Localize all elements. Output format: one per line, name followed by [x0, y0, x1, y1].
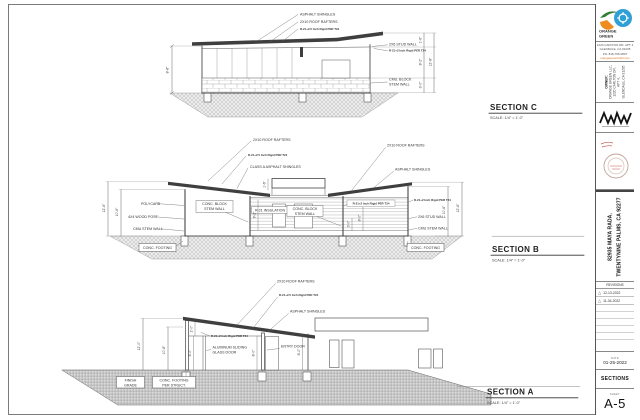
- label-concblock-bc-2: STEM WALL: [295, 212, 316, 216]
- section-b-drawing: 12'-6" 10'-6" 12'-6" 10'-6" 9'-2" 8'-0" …: [102, 138, 584, 263]
- dim-a-left-inner: 10'-8": [162, 345, 166, 354]
- section-c-scale: SCALE: 1/4" = 1'-0": [490, 116, 524, 120]
- section-c-drawing: 8'-8" 1'-6" 8'-2" 3'-0" 12'-8" ASPHALT S…: [166, 13, 583, 121]
- avn-logo-icon: [598, 108, 633, 128]
- revision-date: 11-04-2022: [603, 299, 620, 303]
- sheet-title: SECTIONS: [601, 376, 629, 382]
- dim-c-r1: 1'-6": [419, 36, 423, 44]
- label-rigid2-bc: R-21+2 Inch Rigid PER T24: [353, 202, 390, 206]
- roof-band: [192, 32, 383, 46]
- logo-text-2: GREEN: [599, 34, 613, 39]
- label-grade-a-1: FINISH: [125, 378, 137, 382]
- drawing-sheet: 8'-8" 1'-6" 8'-2" 3'-0" 12'-8" ASPHALT S…: [0, 0, 640, 420]
- sheet-number: A-5: [604, 396, 626, 411]
- revision-row-empty: [596, 326, 634, 333]
- label-shingles-b: ASPHALT SHINGLES: [395, 168, 431, 172]
- label-classa-b: CLASS A ASPHALT SHINGLES: [250, 165, 301, 169]
- dim-b-c4: 1'-6": [263, 180, 267, 188]
- label-concblock-b-2: STEM WALL: [204, 207, 225, 211]
- title-block: ORANGE GREEN 1220 CARLTON DR. APT 4 GLEN…: [595, 4, 634, 415]
- dim-c-left: 8'-8": [166, 66, 170, 74]
- revision-row-empty: [596, 305, 634, 312]
- dim-c-total: 12'-8": [429, 57, 433, 66]
- designer-logo-block: [596, 103, 634, 133]
- sheet-title-block: SECTIONS: [596, 370, 634, 389]
- label-stud-b: 2X6 STUD WALL: [418, 215, 446, 219]
- stamp-seal-icon: [597, 136, 634, 186]
- roof-band: [183, 317, 315, 339]
- label-rafters-b-right: 2X10 ROOF RAFTERS: [387, 144, 425, 148]
- label-rigid25-c: R-21+2.5 Inch Rigid PER T24: [300, 27, 340, 31]
- section-c-title: SECTION C: [490, 103, 537, 112]
- revision-row-empty: [596, 312, 634, 319]
- dim-a-d3: 8'-0": [252, 349, 256, 357]
- label-cmu-b-right: CMU STEM WALL: [418, 227, 448, 231]
- roof-band-right: [328, 182, 412, 197]
- label-polycarb-b: POLYCARB: [141, 202, 161, 206]
- project-address-block: 82935 MAYA RADA, TWENTYNINE PALMS, CA 92…: [596, 190, 634, 282]
- firm-logo: ORANGE GREEN: [596, 4, 634, 42]
- label-rigid2-a: R-21+2 Inch Rigid PER T24: [211, 334, 248, 338]
- date-block: DATE 01-25-2022: [596, 352, 634, 370]
- label-sliding-a-2: GLASS DOOR: [213, 351, 237, 355]
- dim-a-d1: 2'-0": [190, 325, 194, 333]
- dim-b-left-outer: 12'-6": [102, 203, 106, 212]
- label-footing-a-2: PER STRUCT.: [162, 383, 186, 387]
- section-a-drawing: 12'-0" 10'-8" 2'-0" 8'-0" 8'-0" 8'-0" 2X…: [62, 280, 580, 406]
- label-cmu-b-left: CMU STEM WALL: [133, 227, 163, 231]
- label-rigid25-a: R-21+2.5 Inch Rigid PER T24: [279, 293, 319, 297]
- label-shingles-a: ASPHALT SHINGLES: [290, 310, 326, 314]
- sheet-number-block: SHEET A-5: [596, 389, 634, 415]
- label-footing-a-1: CONC. FOOTING: [160, 378, 189, 382]
- date-value: 01-25-2022: [603, 360, 627, 365]
- label-shingles-c: ASPHALT SHINGLES: [300, 13, 336, 17]
- label-entry-a: ENTRY DOOR: [281, 345, 305, 349]
- label-stud-c: 2X6 STUD WALL: [389, 43, 417, 47]
- label-r21-b: R-21 INSULATION: [255, 209, 285, 213]
- revision-row: △ 12-13-2022: [596, 289, 634, 297]
- label-rafters-c: 2X10 ROOF RAFTERS: [300, 20, 338, 24]
- dim-a-d2: 8'-0": [188, 349, 192, 357]
- dim-b-c3: 3'-0": [347, 220, 351, 228]
- project-address-line-1: 82935 MAYA RADA,: [607, 197, 616, 276]
- drawing-canvas: 8'-8" 1'-6" 8'-2" 3'-0" 12'-8" ASPHALT S…: [0, 0, 595, 420]
- dim-a-d4: 8'-0": [297, 348, 301, 356]
- owner-block: OWNER: ORANGE GREEN LLC, 1220 CARLTON DR…: [596, 62, 634, 103]
- revision-row-empty: [596, 333, 634, 340]
- dim-b-right-outer: 12'-6": [456, 203, 460, 212]
- label-concblock-b-1: CONC. BLOCK: [202, 202, 227, 206]
- dim-a-left-outer: 12'-0": [137, 341, 141, 350]
- project-address-line-2: TWENTYNINE PALMS, CA 92277: [615, 197, 624, 276]
- dim-b-c2: 8'-0": [358, 214, 362, 222]
- revisions-heading: REVISIONS: [596, 282, 634, 289]
- label-rigid2-br: R-21+2 Inch Rigid PER T24: [414, 198, 451, 202]
- firm-address-block: 1220 CARLTON DR. APT 4 GLENDALE, CA 9120…: [596, 42, 634, 62]
- revision-row-empty: [596, 319, 634, 326]
- label-sliding-a-1: ALUMINUM SLIDING: [213, 346, 248, 350]
- dim-c-r3: 3'-0": [419, 81, 423, 89]
- revision-date: 12-13-2022: [603, 291, 620, 295]
- section-a-title: SECTION A: [487, 388, 534, 397]
- label-footing-b-right: CONC. FOOTING: [411, 246, 440, 250]
- label-cmu-c-2: STEM WALL: [389, 83, 410, 87]
- dim-b-left-inner: 10'-6": [115, 207, 119, 216]
- revision-triangle-icon: △: [598, 290, 601, 295]
- owner-line: GLENDALE, CA 91205: [621, 65, 625, 99]
- label-cmu-c-1: CMU. BLOCK: [389, 78, 412, 82]
- revisions-block: REVISIONS △ 12-13-2022 △ 11-04-2022: [596, 282, 634, 352]
- label-concblock-bc-1: CONC. BLOCK: [293, 207, 318, 211]
- dim-b-right-inner: 10'-6": [442, 205, 446, 214]
- label-rafters-b-left: 2X10 ROOF RAFTERS: [253, 138, 291, 142]
- dim-c-r2: 8'-2": [419, 58, 423, 66]
- label-rigid2-c: R-21+2 Inch Rigid PER T24: [389, 49, 426, 53]
- section-a-scale: SCALE: 1/4" = 1'-0": [487, 401, 521, 405]
- section-b-scale: SCALE: 1/4" = 1'-0": [492, 259, 526, 263]
- section-b-title: SECTION B: [492, 245, 539, 254]
- orange-green-logo-icon: ORANGE GREEN: [596, 4, 634, 41]
- label-woodpost-b: 4X4 WOOD POST: [128, 215, 159, 219]
- label-rigid25-b: R-21+2.5 Inch Rigid PER T24: [248, 153, 288, 157]
- label-grade-a-2: GRADE: [124, 383, 137, 387]
- revision-triangle-icon: △: [598, 298, 601, 303]
- label-rafters-a: 2X10 ROOF RAFTERS: [277, 280, 315, 284]
- label-footing-b-left: CONC. FOOTING: [143, 246, 172, 250]
- architect-stamp: [596, 133, 634, 190]
- firm-website: orangegreenbuild.com: [600, 56, 630, 60]
- revision-row: △ 11-04-2022: [596, 297, 634, 305]
